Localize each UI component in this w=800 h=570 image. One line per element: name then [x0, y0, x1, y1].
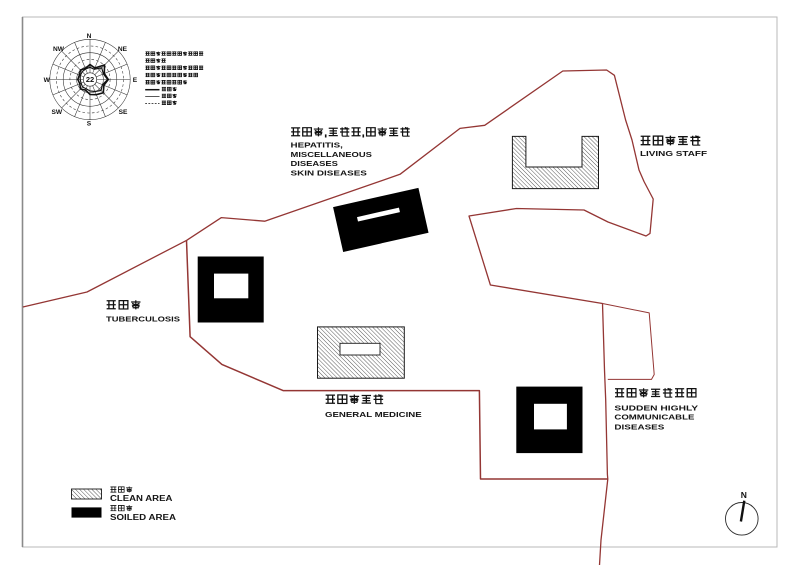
- svg-text:GENERAL MEDICINE: GENERAL MEDICINE: [325, 410, 422, 419]
- svg-text:HEPATITIS,: HEPATITIS,: [291, 141, 343, 150]
- svg-text:MISCELLANEOUS: MISCELLANEOUS: [291, 150, 373, 159]
- svg-text:SUDDEN HIGHLY: SUDDEN HIGHLY: [614, 403, 698, 412]
- svg-text:CLEAN AREA: CLEAN AREA: [110, 494, 173, 503]
- svg-text:N: N: [87, 33, 92, 40]
- svg-text:S: S: [87, 121, 92, 128]
- svg-text:NE: NE: [118, 46, 128, 53]
- svg-text:SKIN DISEASES: SKIN DISEASES: [291, 168, 368, 177]
- svg-text:DISEASES: DISEASES: [291, 159, 339, 168]
- svg-text:E: E: [133, 77, 138, 84]
- svg-text:LIVING STAFF: LIVING STAFF: [640, 149, 708, 158]
- svg-text:SE: SE: [119, 109, 128, 116]
- svg-text:SW: SW: [51, 109, 62, 116]
- svg-text:22: 22: [86, 75, 94, 84]
- svg-text:DISEASES: DISEASES: [614, 423, 664, 432]
- svg-text:W: W: [44, 77, 51, 84]
- svg-text:SOILED AREA: SOILED AREA: [110, 513, 176, 522]
- svg-text:TUBERCULOSIS: TUBERCULOSIS: [106, 315, 180, 324]
- svg-text:N: N: [741, 490, 747, 500]
- svg-text:COMMUNICABLE: COMMUNICABLE: [614, 413, 694, 422]
- svg-text:NW: NW: [53, 46, 65, 53]
